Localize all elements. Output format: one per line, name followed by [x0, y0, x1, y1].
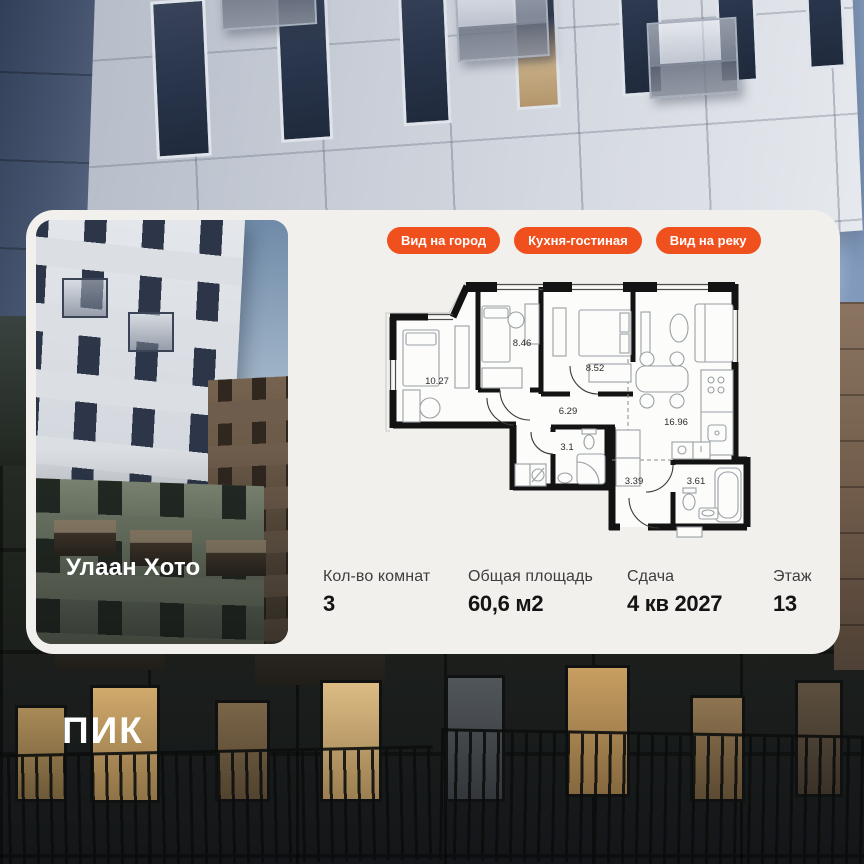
stat-delivery: Сдача 4 кв 2027 — [627, 568, 722, 617]
room-area-label: 8.46 — [513, 338, 532, 349]
facade-window — [150, 0, 212, 160]
stat-area: Общая площадь 60,6 м2 — [468, 568, 593, 617]
feature-badges: Вид на город Кухня-гостиная Вид на реку — [387, 227, 761, 254]
balcony — [646, 17, 739, 99]
photo-shade-overlay — [36, 449, 288, 644]
project-name: Улаан Хото — [66, 554, 200, 582]
facade-window — [397, 0, 452, 126]
stat-label: Сдача — [627, 568, 722, 586]
stat-label: Кол-во комнат — [323, 568, 430, 586]
photo-balcony — [128, 312, 174, 352]
stat-value: 13 — [773, 591, 812, 617]
room-area-label: 6.29 — [559, 406, 578, 417]
balcony-railing — [0, 745, 435, 864]
room-area-label: 16.96 — [664, 417, 688, 428]
pik-logo: ПИК — [62, 710, 144, 752]
room-area-label: 3.61 — [687, 476, 706, 487]
room-area-label: 3.39 — [625, 476, 644, 487]
stat-floor: Этаж 13 — [773, 568, 812, 617]
photo-balcony — [62, 278, 108, 318]
project-photo: Улаан Хото — [36, 220, 288, 644]
balcony — [455, 0, 550, 62]
balcony-railing — [439, 728, 864, 864]
promo-banner: { "card": { "project_name": "Улаан Хото"… — [0, 0, 864, 864]
stat-value: 60,6 м2 — [468, 591, 593, 617]
stat-rooms: Кол-во комнат 3 — [323, 568, 430, 617]
listing-card: Улаан Хото Вид на город Кухня-гостиная В… — [26, 210, 840, 654]
stat-label: Общая площадь — [468, 568, 593, 586]
room-area-label: 8.52 — [586, 363, 605, 374]
stat-label: Этаж — [773, 568, 812, 586]
stat-value: 4 кв 2027 — [627, 591, 722, 617]
floor-plan: 10.27 8.46 8.52 6.29 16.96 3.1 3.39 3.61 — [383, 282, 751, 540]
badge-city-view[interactable]: Вид на город — [387, 227, 500, 254]
badge-river-view[interactable]: Вид на реку — [656, 227, 761, 254]
facade-window — [802, 0, 846, 70]
stat-value: 3 — [323, 591, 430, 617]
room-area-label: 3.1 — [560, 442, 573, 453]
room-area-label: 10.27 — [425, 376, 449, 387]
badge-kitchen-living[interactable]: Кухня-гостиная — [514, 227, 642, 254]
